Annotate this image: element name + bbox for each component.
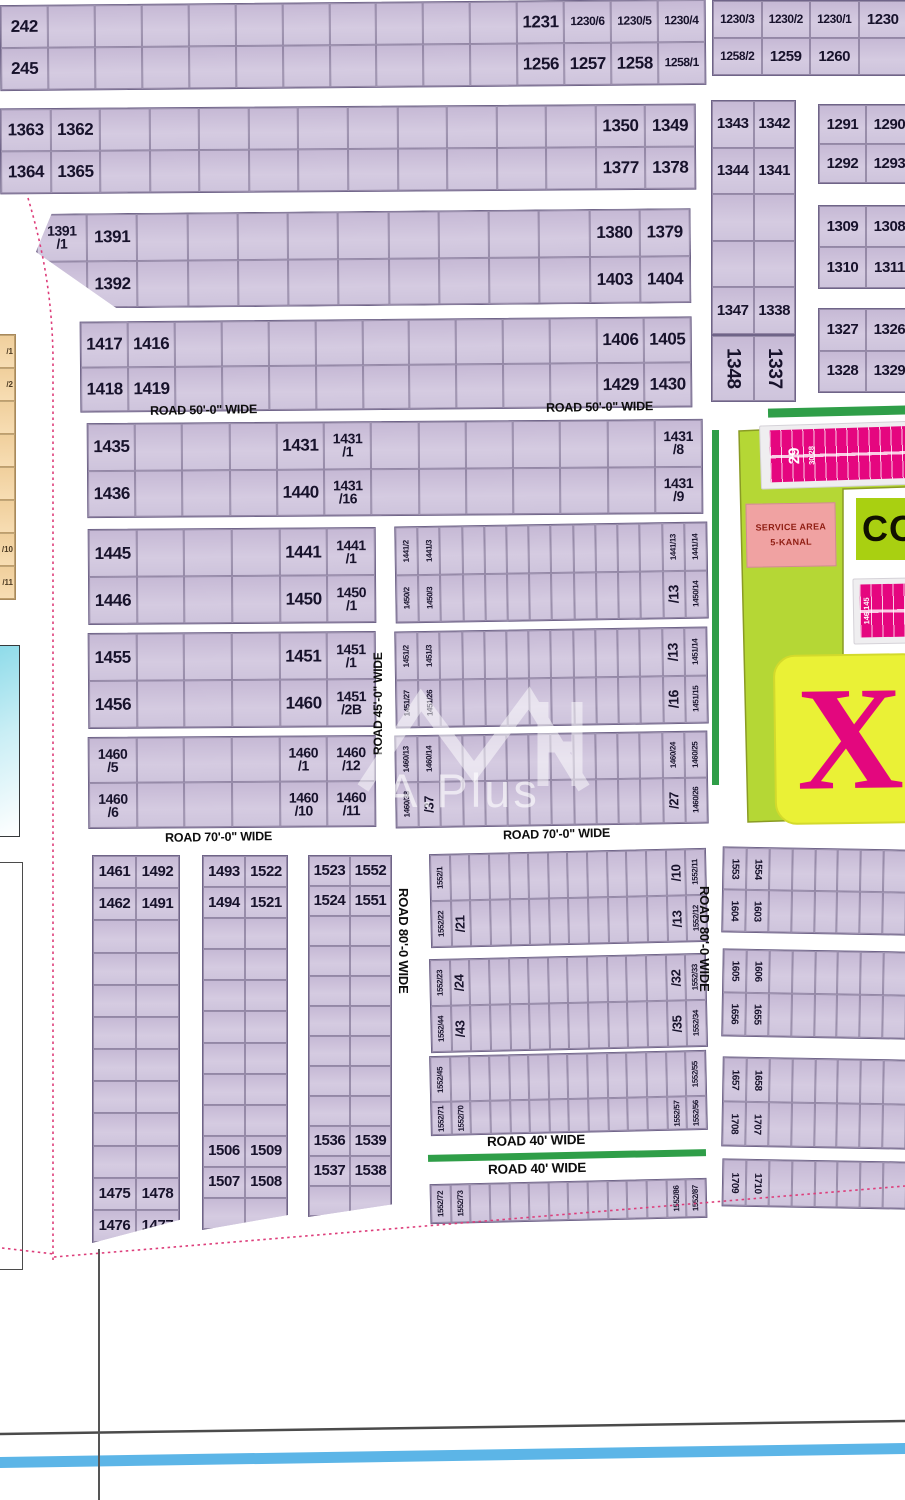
plot-cell: 1431 /1 (324, 422, 372, 469)
plot-cell (647, 1097, 667, 1130)
plot-cell (136, 920, 179, 952)
plot-cell: 1230/1 (810, 1, 859, 38)
plot-number: 1417 (86, 337, 122, 353)
plot-cell: 1451/14 (684, 628, 707, 676)
plot-cell (573, 733, 596, 779)
plot-cell (136, 1017, 179, 1049)
plot-cell: 1326 (866, 309, 905, 351)
plot-cell (423, 44, 470, 86)
plot-cell: 1476 (93, 1210, 136, 1242)
plot-number: 1506 (208, 1144, 240, 1158)
plot-cell (551, 779, 574, 825)
road-label-70-right: ROAD 70'-0" WIDE (503, 826, 610, 842)
plot-number: /24 (454, 974, 466, 991)
plot-cell: /10 (666, 849, 687, 895)
plot-cell (470, 900, 491, 946)
plot-cell (298, 149, 348, 191)
plot-block-b9c1: 14611492146214911475147814761477 (92, 855, 180, 1243)
plot-cell: 1460/24 (662, 732, 685, 778)
plot-cell (568, 1054, 589, 1100)
plot-cell: 1552 (350, 856, 391, 886)
plot-cell (203, 949, 245, 980)
plot-cell (510, 899, 531, 945)
plot-cell: 1455 (89, 634, 137, 681)
plot-cell (309, 916, 350, 946)
plot-number: 1493 (208, 865, 240, 879)
plot-cell (135, 423, 183, 470)
plot-cell (136, 985, 179, 1017)
plot-cell (768, 1160, 792, 1206)
plot-number: 1708 (729, 1113, 739, 1134)
plot-cell (350, 1186, 391, 1216)
plot-number: 1606 (753, 961, 763, 982)
plot-cell (440, 679, 463, 727)
plot-number: 1478 (142, 1187, 174, 1201)
plot-cell (627, 1001, 648, 1047)
plot-cell (450, 1056, 471, 1102)
plot-cell (618, 778, 641, 824)
plot-cell (587, 851, 608, 897)
plot-cell (371, 468, 419, 515)
plot-block-b9c3: 15231552152415511536153915371538 (308, 855, 392, 1217)
plot-cell (837, 951, 861, 994)
plot-number: 1603 (752, 901, 762, 922)
plot-number: 1451 (285, 648, 321, 664)
plot-cell (203, 918, 245, 949)
plot-cell (245, 1105, 287, 1136)
plot-number: /13 (667, 585, 680, 603)
plot-cell (309, 1096, 350, 1126)
plot-number: 1552/71 (437, 1105, 445, 1131)
plot-number: 1445 (95, 545, 131, 561)
plot-cell: 1292 (819, 144, 866, 183)
plot-cell (466, 468, 514, 515)
plot-cell: 1291 (819, 105, 866, 144)
plot-block-b7l: 145514511451 /1145614601451 /2B (88, 631, 377, 729)
plot-number: 1552/73 (457, 1190, 465, 1216)
plot-cell: 1552/45 (430, 1057, 451, 1103)
plot-cell (529, 1003, 550, 1049)
plot-cell (389, 258, 440, 305)
plot-number: /13 (671, 910, 683, 927)
plot-cell (249, 107, 299, 149)
plot-cell (587, 1053, 608, 1099)
plot-cell: 1365 (51, 151, 101, 193)
plot-number: 1462 (99, 897, 131, 911)
plot-cell (470, 44, 517, 86)
plot-number: 1418 (86, 381, 122, 397)
plot-cell (860, 952, 884, 995)
plot-cell (792, 1059, 816, 1103)
plot-cell (188, 260, 239, 307)
plot-cell: 1460 /6 (89, 783, 137, 828)
plot-cell (203, 1074, 245, 1105)
plot-cell (229, 423, 277, 470)
plot-cell (814, 994, 838, 1037)
plot-number: 1341 (758, 164, 790, 178)
plot-map-page: 29 30 28 SERVICE AREA 5-KANAL CO 146 145… (0, 0, 905, 1500)
plot-cell (815, 849, 839, 891)
plot-cell (595, 629, 618, 677)
plot-number: 1508 (250, 1175, 282, 1189)
plot-cell: 1450/14 (685, 570, 708, 618)
road-label-40-lower: ROAD 40' WIDE (488, 1160, 586, 1177)
plot-number: 1655 (752, 1004, 762, 1025)
plot-cell (388, 211, 439, 258)
plot-number: 1230/1 (817, 14, 851, 25)
plot-cell (350, 946, 391, 976)
plot-number: 1538 (355, 1164, 387, 1178)
plot-block-mid1: 134313421344134113471338 (711, 100, 796, 335)
plot-cell (137, 260, 188, 307)
plot-cell (627, 1180, 647, 1218)
plot-number: 1552/45 (437, 1066, 445, 1092)
plot-number: 1441/13 (669, 534, 677, 560)
plot-cell (595, 524, 618, 572)
plot-cell: 1431 /8 (654, 420, 702, 467)
plot-cell (93, 1081, 136, 1113)
plot-number: 1657 (730, 1069, 740, 1090)
plot-cell (440, 526, 463, 574)
plot-cell: 1536 (309, 1126, 350, 1156)
plot-cell: 1417 (81, 322, 128, 367)
plot-cell: 1363 (1, 109, 51, 151)
plot-number: 1450/2 (404, 587, 412, 609)
plot-number: 1460 (285, 695, 321, 711)
plot-cell: 1460 (280, 679, 328, 726)
plot-number: 1362 (57, 122, 93, 138)
plot-number: /16 (667, 690, 680, 708)
plot-cell: 1656 (722, 992, 746, 1035)
plot-cell: 1431 (277, 422, 325, 469)
plot-cell: 1605 (723, 949, 747, 992)
plot-cell (93, 1049, 136, 1081)
plot-cell: 1491 (136, 888, 179, 920)
plot-cell: 1552/72 (431, 1185, 451, 1223)
plot-cell (489, 1055, 510, 1101)
plot-cell (485, 573, 508, 621)
plot-number: 1230/3 (720, 14, 754, 25)
plot-cell (362, 320, 409, 365)
plot-cell (883, 1162, 905, 1208)
plot-cell: 1441/2 (395, 527, 418, 575)
plot-cell (309, 1006, 350, 1036)
plot-number: 1475 (99, 1187, 131, 1201)
plot-cell: 1539 (350, 1126, 391, 1156)
plot-cell (203, 1043, 245, 1074)
plot-number: 1391 /1 (47, 225, 77, 251)
plot-cell: 1709 (723, 1159, 747, 1205)
plot-cell: 1655 (745, 993, 769, 1036)
plot-cell (484, 526, 507, 574)
plot-cell (628, 1097, 648, 1130)
plot-cell (646, 955, 667, 1001)
plot-number: 245 (11, 61, 38, 77)
plot-cell: 1507 (203, 1167, 245, 1198)
plot-cell (754, 194, 796, 241)
road-label-50-left: ROAD 50'-0" WIDE (150, 402, 257, 418)
plot-cell (509, 853, 530, 899)
plot-number: 1344 (717, 164, 749, 178)
plot-number: 1347 (717, 304, 749, 318)
plot-cell (456, 363, 503, 408)
plot-cell (574, 779, 597, 825)
plot-cell (882, 1104, 905, 1148)
plot-number: 1552/57 (673, 1100, 681, 1126)
plot-cell (409, 319, 456, 364)
plot-cell (330, 45, 377, 87)
plot-cell: 1707 (745, 1102, 769, 1146)
plot-cell (883, 1060, 905, 1104)
plot-cell (529, 898, 550, 944)
plot-cell (528, 852, 549, 898)
plot-number: /43 (455, 1020, 467, 1037)
plot-cell (350, 976, 391, 1006)
plot-cell: 1344 (712, 148, 754, 195)
plot-cell: 1522 (245, 856, 287, 887)
plot-cell (647, 896, 668, 942)
plot-cell: 1347 (712, 287, 754, 334)
plot-number: 1450/14 (692, 581, 700, 607)
plot-cell (548, 1182, 568, 1220)
plot-cell: 1406 (597, 318, 644, 363)
plot-cell: 1456 (89, 681, 137, 728)
plot-number: 1431 /1 (333, 433, 363, 459)
plot-number: 1441 /1 (336, 539, 366, 565)
plot-cell (450, 854, 471, 900)
plot-cell (551, 630, 574, 678)
plot-number: 1524 (314, 894, 346, 908)
plot-cell: 1554 (746, 848, 770, 890)
plot-cell (573, 629, 596, 677)
plot-cell: 1310 (819, 247, 866, 288)
plot-cell (188, 4, 235, 46)
plot-cell: 1380 (589, 210, 640, 257)
plot-cell: 1708 (722, 1101, 746, 1145)
plot-cell (596, 571, 619, 619)
plot-cell (588, 1002, 609, 1048)
plot-cell (245, 918, 287, 949)
plot-block-bmb: 1552/23/24/321552/331552/44/43/351552/34 (429, 953, 708, 1053)
plot-cell (617, 629, 640, 677)
plot-cell (627, 896, 648, 942)
plot-cell (560, 421, 608, 468)
plot-cell (269, 365, 316, 410)
plot-cell (489, 853, 510, 899)
plot-cell (551, 572, 574, 620)
plot-cell: 1441 /1 (327, 528, 375, 575)
plot-cell (37, 261, 88, 308)
plot-cell (135, 470, 183, 517)
plot-cell (506, 630, 529, 678)
plot-number: 1377 (603, 160, 639, 176)
plot-number: 1258 (617, 56, 653, 72)
plot-cell (859, 995, 883, 1038)
plot-cell (136, 1081, 179, 1113)
plot-number: 1494 (208, 896, 240, 910)
plot-cell (232, 529, 280, 576)
plot-cell (199, 150, 249, 192)
plot-number: 1539 (355, 1134, 387, 1148)
plot-number: 1552/23 (436, 970, 444, 996)
plot-cell (551, 525, 574, 573)
plot-cell: 1508 (245, 1167, 287, 1198)
plot-number: 1460 /1 (288, 746, 318, 772)
plot-number: 1327 (827, 323, 859, 337)
plot-cell (288, 259, 339, 306)
plot-cell: 1451/26 (418, 679, 441, 727)
plot-cell (199, 108, 249, 150)
plot-number: /11 (2, 579, 13, 586)
plot-cell: 1493 (203, 856, 245, 887)
plot-number: 1328 (827, 364, 859, 378)
plot-block-bma: 1552/1/101552/111552/22/21/131552/12 (429, 848, 708, 948)
plot-block-b6l: 144514411441 /1144614501450 /1 (88, 527, 377, 625)
plot-cell (837, 891, 861, 933)
plot-cell (568, 898, 589, 944)
plot-number: 1537 (314, 1164, 346, 1178)
plot-cell (646, 1052, 667, 1098)
plot-number: 1257 (570, 56, 606, 72)
watermark-text: A.Plus (386, 763, 540, 818)
plot-cell (348, 149, 398, 191)
plot-cell (497, 148, 547, 190)
plot-number: /35 (671, 1015, 683, 1032)
plot-number: 1338 (758, 304, 790, 318)
plot-number: 1477 (142, 1219, 174, 1233)
plot-cell: 1405 (644, 317, 691, 362)
plot-cell (510, 1004, 531, 1050)
plot-number: 1451/26 (426, 690, 434, 716)
plot-cell: 1451 /1 (327, 632, 375, 679)
plot-number: 1451/15 (692, 686, 700, 712)
plot-cell (409, 364, 456, 409)
plot-cell (438, 211, 489, 258)
plot-cell: 1364 (1, 151, 51, 193)
plot-number: 1441/14 (692, 533, 700, 559)
plot-cell: 1348 (712, 336, 754, 401)
plot-cell (769, 848, 793, 890)
plot-block-br4: 17091710 (722, 1158, 905, 1209)
plot-cell (282, 3, 329, 45)
plot-cell (245, 1074, 287, 1105)
plot-cell (232, 737, 280, 782)
road-label-45-vertical: ROAD 45'-0" WIDE (371, 615, 385, 755)
plot-cell: 1658 (746, 1058, 770, 1102)
plot-number: 1460 /6 (98, 792, 128, 818)
plot-cell (496, 106, 546, 148)
plot-cell (184, 529, 232, 576)
plot-cell (93, 1017, 136, 1049)
plot-number: 1451 /1 (336, 643, 366, 669)
plot-cell (238, 259, 289, 306)
plot-cell (549, 898, 570, 944)
plot-number: 1451/2 (403, 645, 411, 667)
plot-cell (456, 319, 503, 364)
plot-cell: 1329 (866, 351, 905, 393)
plot-cell: 1552/73 (450, 1184, 470, 1222)
plot-cell: 1492 (136, 856, 179, 888)
plot-number: 1507 (208, 1175, 240, 1189)
plot-cell (573, 524, 596, 572)
plot-cell: 1258/1 (658, 42, 705, 84)
plot-cell: 1606 (746, 950, 770, 993)
plot-number: /13 (667, 643, 680, 661)
plot-cell (136, 953, 179, 985)
plot-cell (470, 1184, 490, 1222)
plot-cell (149, 108, 199, 150)
plot-number: 1230/2 (769, 14, 803, 25)
plot-cell (309, 1036, 350, 1066)
plot-cell (574, 677, 597, 725)
plot-cell: 1552/70 (451, 1101, 471, 1134)
plot-cell: 245 (1, 48, 48, 90)
plot-cell (221, 321, 268, 366)
plot-number: 1230/6 (570, 16, 604, 27)
plot-cell (588, 1098, 608, 1131)
plot-cell (309, 946, 350, 976)
plot-cell (490, 1004, 511, 1050)
plot-number: 1492 (142, 865, 174, 879)
plot-cell (376, 44, 423, 86)
plot-number: 1343 (717, 117, 749, 131)
plot-cell (712, 241, 754, 288)
plot-cell (640, 628, 663, 676)
plot-number: 1260 (818, 50, 850, 64)
plot-cell (503, 363, 550, 408)
plot-cell (837, 994, 861, 1037)
plot-cell (768, 890, 792, 932)
plot-cell (463, 574, 486, 622)
plot-cell (617, 733, 640, 779)
plot-cell (883, 952, 905, 995)
plot-cell (232, 680, 280, 727)
plot-cell: /13 (663, 570, 686, 618)
plot-cell (607, 956, 628, 1002)
plot-number: 1455 (95, 649, 131, 665)
plot-number: 1658 (753, 1070, 763, 1091)
plot-cell: 1451 (279, 632, 327, 679)
plot-block-b5: 143514311431 /11431 /8143614401431 /1614… (87, 419, 704, 518)
plot-cell (232, 633, 280, 680)
plot-cell (509, 1055, 530, 1101)
plot-cell (245, 1011, 287, 1042)
plot-cell: 1552/57 (667, 1097, 687, 1130)
plot-number: 1364 (8, 164, 44, 180)
plot-cell: 1538 (350, 1156, 391, 1186)
plot-cell (574, 572, 597, 620)
plot-cell (484, 631, 507, 679)
plot-cell (136, 529, 184, 576)
plot-number: 1365 (57, 164, 93, 180)
plot-cell: 1436 (88, 470, 136, 517)
plot-cell: 1552/44 (431, 1006, 452, 1052)
plot-cell (329, 3, 376, 45)
plot-number: 1378 (652, 160, 688, 176)
plot-cell (860, 1162, 884, 1208)
plot-block-b2: 13631362135013491364136513771378 (0, 104, 696, 195)
plot-number: 1431 (282, 438, 318, 454)
plot-cell (230, 469, 278, 516)
plot-cell: 1308 (866, 206, 905, 247)
plot-cell: 1342 (754, 101, 796, 148)
plot-number: 1552/11 (692, 859, 700, 885)
plot-number: 1404 (647, 271, 683, 287)
plot-cell: 1258/2 (713, 38, 762, 75)
plot-cell (596, 676, 619, 724)
plot-cell (203, 1011, 245, 1042)
plot-number: 1552/1 (436, 867, 444, 889)
